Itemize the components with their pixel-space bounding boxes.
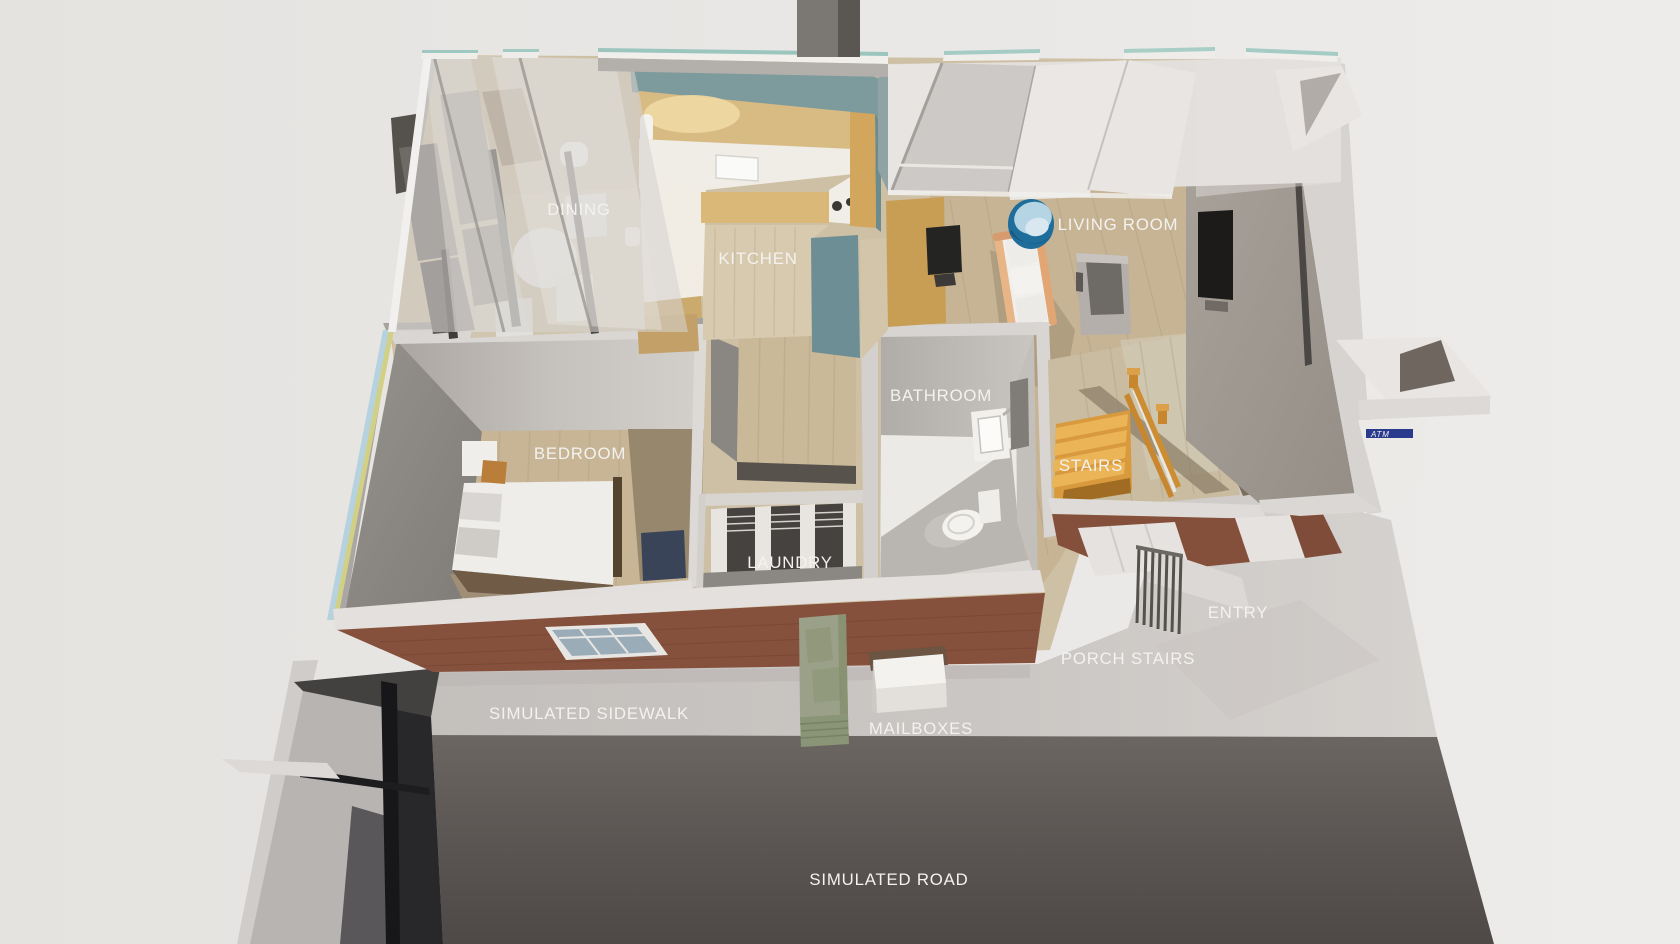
svg-text:KITCHEN: KITCHEN	[718, 249, 797, 268]
svg-text:DINING: DINING	[547, 200, 611, 219]
svg-text:SIMULATED SIDEWALK: SIMULATED SIDEWALK	[489, 704, 689, 723]
svg-text:PORCH STAIRS: PORCH STAIRS	[1061, 649, 1195, 668]
svg-text:LIVING ROOM: LIVING ROOM	[1058, 215, 1179, 234]
svg-text:SIMULATED ROAD: SIMULATED ROAD	[809, 870, 968, 889]
svg-text:ATM: ATM	[1370, 430, 1390, 439]
svg-text:STAIRS: STAIRS	[1059, 456, 1123, 475]
svg-text:ENTRY: ENTRY	[1208, 603, 1269, 622]
svg-text:BEDROOM: BEDROOM	[534, 444, 626, 463]
svg-text:LAUNDRY: LAUNDRY	[747, 553, 833, 572]
svg-text:MAILBOXES: MAILBOXES	[869, 719, 973, 738]
svg-text:BATHROOM: BATHROOM	[890, 386, 992, 405]
